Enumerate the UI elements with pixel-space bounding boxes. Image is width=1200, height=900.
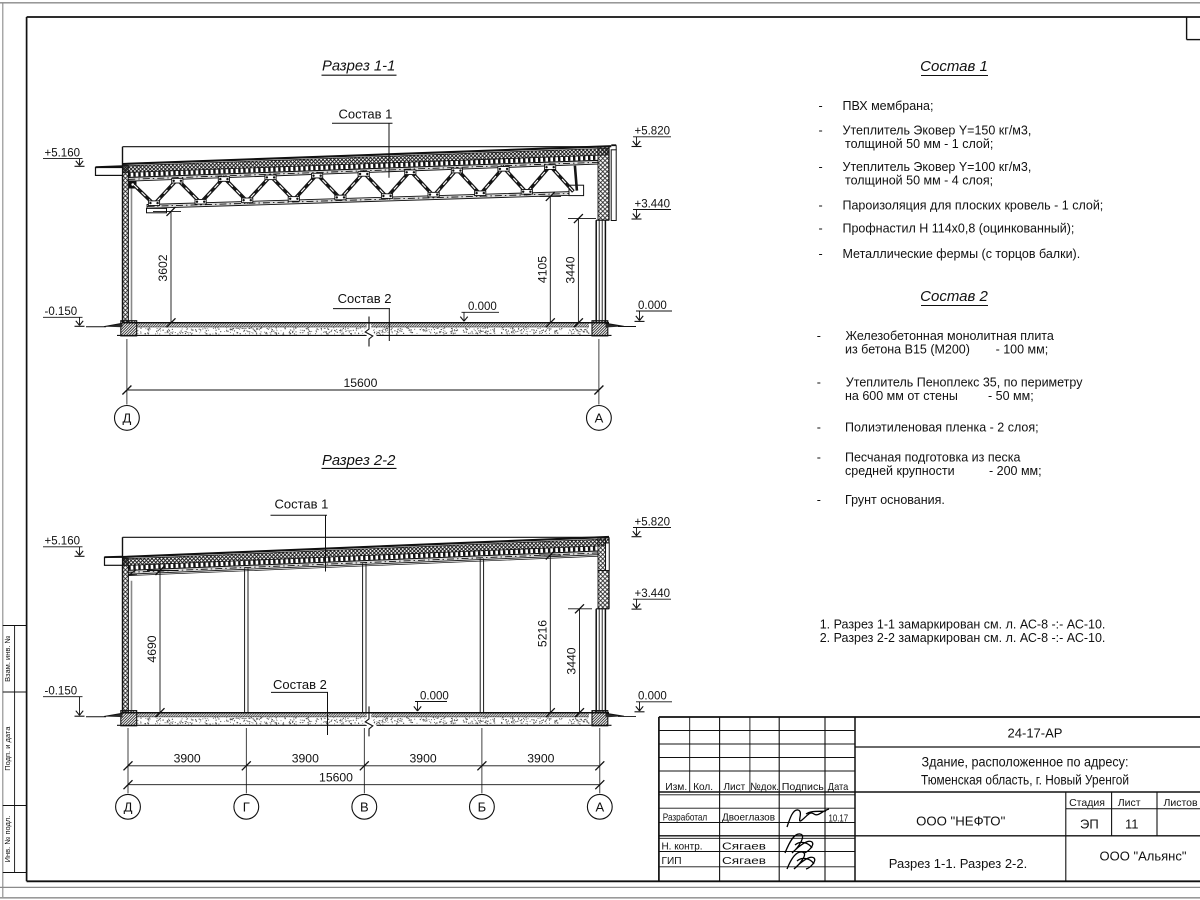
svg-text:4105: 4105 <box>536 256 550 283</box>
svg-text:0.000: 0.000 <box>468 301 497 313</box>
svg-text:+5.820: +5.820 <box>635 126 671 138</box>
svg-text:Н. контр.: Н. контр. <box>662 841 703 852</box>
svg-text:+3.440: +3.440 <box>635 588 671 600</box>
svg-text:Подпись: Подпись <box>782 781 825 793</box>
svg-text:5216: 5216 <box>536 620 550 647</box>
svg-text:Пароизоляция для плоских крове: Пароизоляция для плоских кровель - 1 сло… <box>843 198 1104 212</box>
svg-text:- 100 мм;: - 100 мм; <box>996 342 1049 356</box>
svg-text:на 600 мм от стены: на 600 мм от стены <box>845 389 958 403</box>
svg-text:0.000: 0.000 <box>420 690 449 702</box>
svg-text:Состав 1: Состав 1 <box>920 58 988 75</box>
svg-text:10.17: 10.17 <box>829 813 849 824</box>
svg-text:Изм.: Изм. <box>665 781 687 793</box>
svg-text:Разрез 1-1. Разрез 2-2.: Разрез 1-1. Разрез 2-2. <box>889 856 1027 871</box>
svg-text:Песчаная подготовка из песка: Песчаная подготовка из песка <box>845 451 1021 465</box>
svg-text:-: - <box>819 99 823 113</box>
svg-text:ЭП: ЭП <box>1080 817 1099 832</box>
svg-text:Инв. № подл.: Инв. № подл. <box>3 816 12 863</box>
svg-text:-: - <box>819 124 823 138</box>
svg-text:Сягаев: Сягаев <box>722 841 767 852</box>
svg-text:Стадия: Стадия <box>1069 797 1105 809</box>
svg-text:-0.150: -0.150 <box>45 306 78 318</box>
svg-text:3900: 3900 <box>292 752 319 766</box>
svg-text:Б: Б <box>478 800 487 815</box>
svg-text:В: В <box>360 800 369 815</box>
svg-text:средней крупности: средней крупности <box>845 464 955 478</box>
svg-text:Утеплитель Пеноплекс 35, по пе: Утеплитель Пеноплекс 35, по периметру <box>846 375 1083 389</box>
svg-text:Д: Д <box>124 800 133 815</box>
svg-text:3440: 3440 <box>564 256 578 283</box>
svg-text:Полиэтиленовая пленка - 2 слоя: Полиэтиленовая пленка - 2 слоя; <box>845 421 1039 435</box>
svg-text:- 200 мм;: - 200 мм; <box>989 464 1042 478</box>
svg-text:Двоеглазов: Двоеглазов <box>722 813 776 824</box>
svg-text:-: - <box>819 160 823 174</box>
svg-text:-: - <box>817 375 821 389</box>
svg-text:3900: 3900 <box>527 752 554 766</box>
svg-text:Г: Г <box>243 800 250 815</box>
svg-text:Грунт основания.: Грунт основания. <box>845 493 945 507</box>
svg-text:Металлические фермы (с торцов: Металлические фермы (с торцов балки). <box>843 247 1081 261</box>
svg-text:Кол.: Кол. <box>693 781 713 793</box>
svg-text:+5.820: +5.820 <box>635 516 671 528</box>
svg-text:0.000: 0.000 <box>638 300 667 312</box>
svg-text:3602: 3602 <box>156 254 170 281</box>
svg-text:Состав 2: Состав 2 <box>920 288 988 305</box>
svg-text:3900: 3900 <box>410 752 437 766</box>
svg-text:-: - <box>817 329 821 343</box>
svg-text:толщиной 50 мм - 1 слой;: толщиной 50 мм - 1 слой; <box>845 137 993 151</box>
svg-text:Железобетонная монолитная пли: Железобетонная монолитная плита <box>846 329 1054 343</box>
svg-text:Здание, расположенное по адрес: Здание, расположенное по адресу: <box>922 755 1129 770</box>
svg-text:Утеплитель Эковер Y=100 кг/м3,: Утеплитель Эковер Y=100 кг/м3, <box>843 160 1032 174</box>
svg-text:Разработал: Разработал <box>663 812 707 824</box>
svg-text:2. Разрез 2-2 замаркирован см.: 2. Разрез 2-2 замаркирован см. л. АС-8 -… <box>820 631 1106 645</box>
svg-text:-: - <box>817 421 821 435</box>
svg-text:-0.150: -0.150 <box>45 686 78 698</box>
svg-text:Сягаев: Сягаев <box>722 856 767 867</box>
svg-text:15600: 15600 <box>343 376 377 390</box>
svg-text:Листов: Листов <box>1163 797 1198 809</box>
svg-text:15600: 15600 <box>319 770 353 784</box>
svg-text:А: А <box>595 411 604 426</box>
svg-text:Лист: Лист <box>724 781 746 793</box>
svg-text:+5.160: +5.160 <box>45 147 81 159</box>
svg-text:ООО "НЕФТО": ООО "НЕФТО" <box>916 814 1005 829</box>
svg-text:-: - <box>819 247 823 261</box>
svg-text:24-17-АР: 24-17-АР <box>1008 726 1063 741</box>
svg-text:ГИП: ГИП <box>662 856 682 867</box>
svg-text:Тюменская область, г. Новый Ур: Тюменская область, г. Новый Уренгой <box>921 773 1129 788</box>
svg-text:Подп. и дата: Подп. и дата <box>3 726 12 771</box>
svg-text:Лист: Лист <box>1118 797 1141 809</box>
svg-text:А: А <box>595 800 604 815</box>
svg-text:4690: 4690 <box>145 635 159 662</box>
svg-text:3440: 3440 <box>565 647 579 674</box>
svg-text:Состав 1: Состав 1 <box>339 107 393 122</box>
svg-text:Взам. инв. №: Взам. инв. № <box>3 635 12 681</box>
svg-text:Состав 2: Состав 2 <box>338 291 392 306</box>
svg-text:№док.: №док. <box>750 781 779 793</box>
svg-text:из бетона В15 (М200): из бетона В15 (М200) <box>845 342 970 356</box>
svg-text:толщиной 50 мм - 4 слоя;: толщиной 50 мм - 4 слоя; <box>845 173 993 187</box>
svg-text:Дата: Дата <box>828 781 849 793</box>
svg-text:Состав 1: Состав 1 <box>275 497 329 512</box>
svg-text:Разрез 2-2: Разрез 2-2 <box>322 453 396 469</box>
svg-text:-: - <box>817 493 821 507</box>
svg-text:ООО "Альянс": ООО "Альянс" <box>1100 849 1187 864</box>
svg-text:Д: Д <box>122 411 131 426</box>
svg-text:Профнастил Н 114х0,8 (оцинкова: Профнастил Н 114х0,8 (оцинкованный); <box>843 221 1075 235</box>
svg-text:Состав 2: Состав 2 <box>273 677 327 692</box>
svg-text:0.000: 0.000 <box>638 691 667 703</box>
svg-text:3900: 3900 <box>174 752 201 766</box>
svg-text:11: 11 <box>1125 817 1139 832</box>
svg-text:ПВХ мембрана;: ПВХ мембрана; <box>843 99 934 113</box>
svg-text:+3.440: +3.440 <box>635 198 671 210</box>
svg-text:Утеплитель Эковер Y=150 кг/м3,: Утеплитель Эковер Y=150 кг/м3, <box>843 124 1032 138</box>
svg-text:Разрез 1-1: Разрез 1-1 <box>322 59 395 75</box>
svg-text:-: - <box>817 451 821 465</box>
svg-text:1. Разрез 1-1 замаркирован см.: 1. Разрез 1-1 замаркирован см. л. АС-8 -… <box>820 618 1106 632</box>
svg-text:-: - <box>819 198 823 212</box>
svg-text:-: - <box>819 221 823 235</box>
svg-text:+5.160: +5.160 <box>45 536 81 548</box>
svg-text:- 50 мм;: - 50 мм; <box>988 389 1034 403</box>
